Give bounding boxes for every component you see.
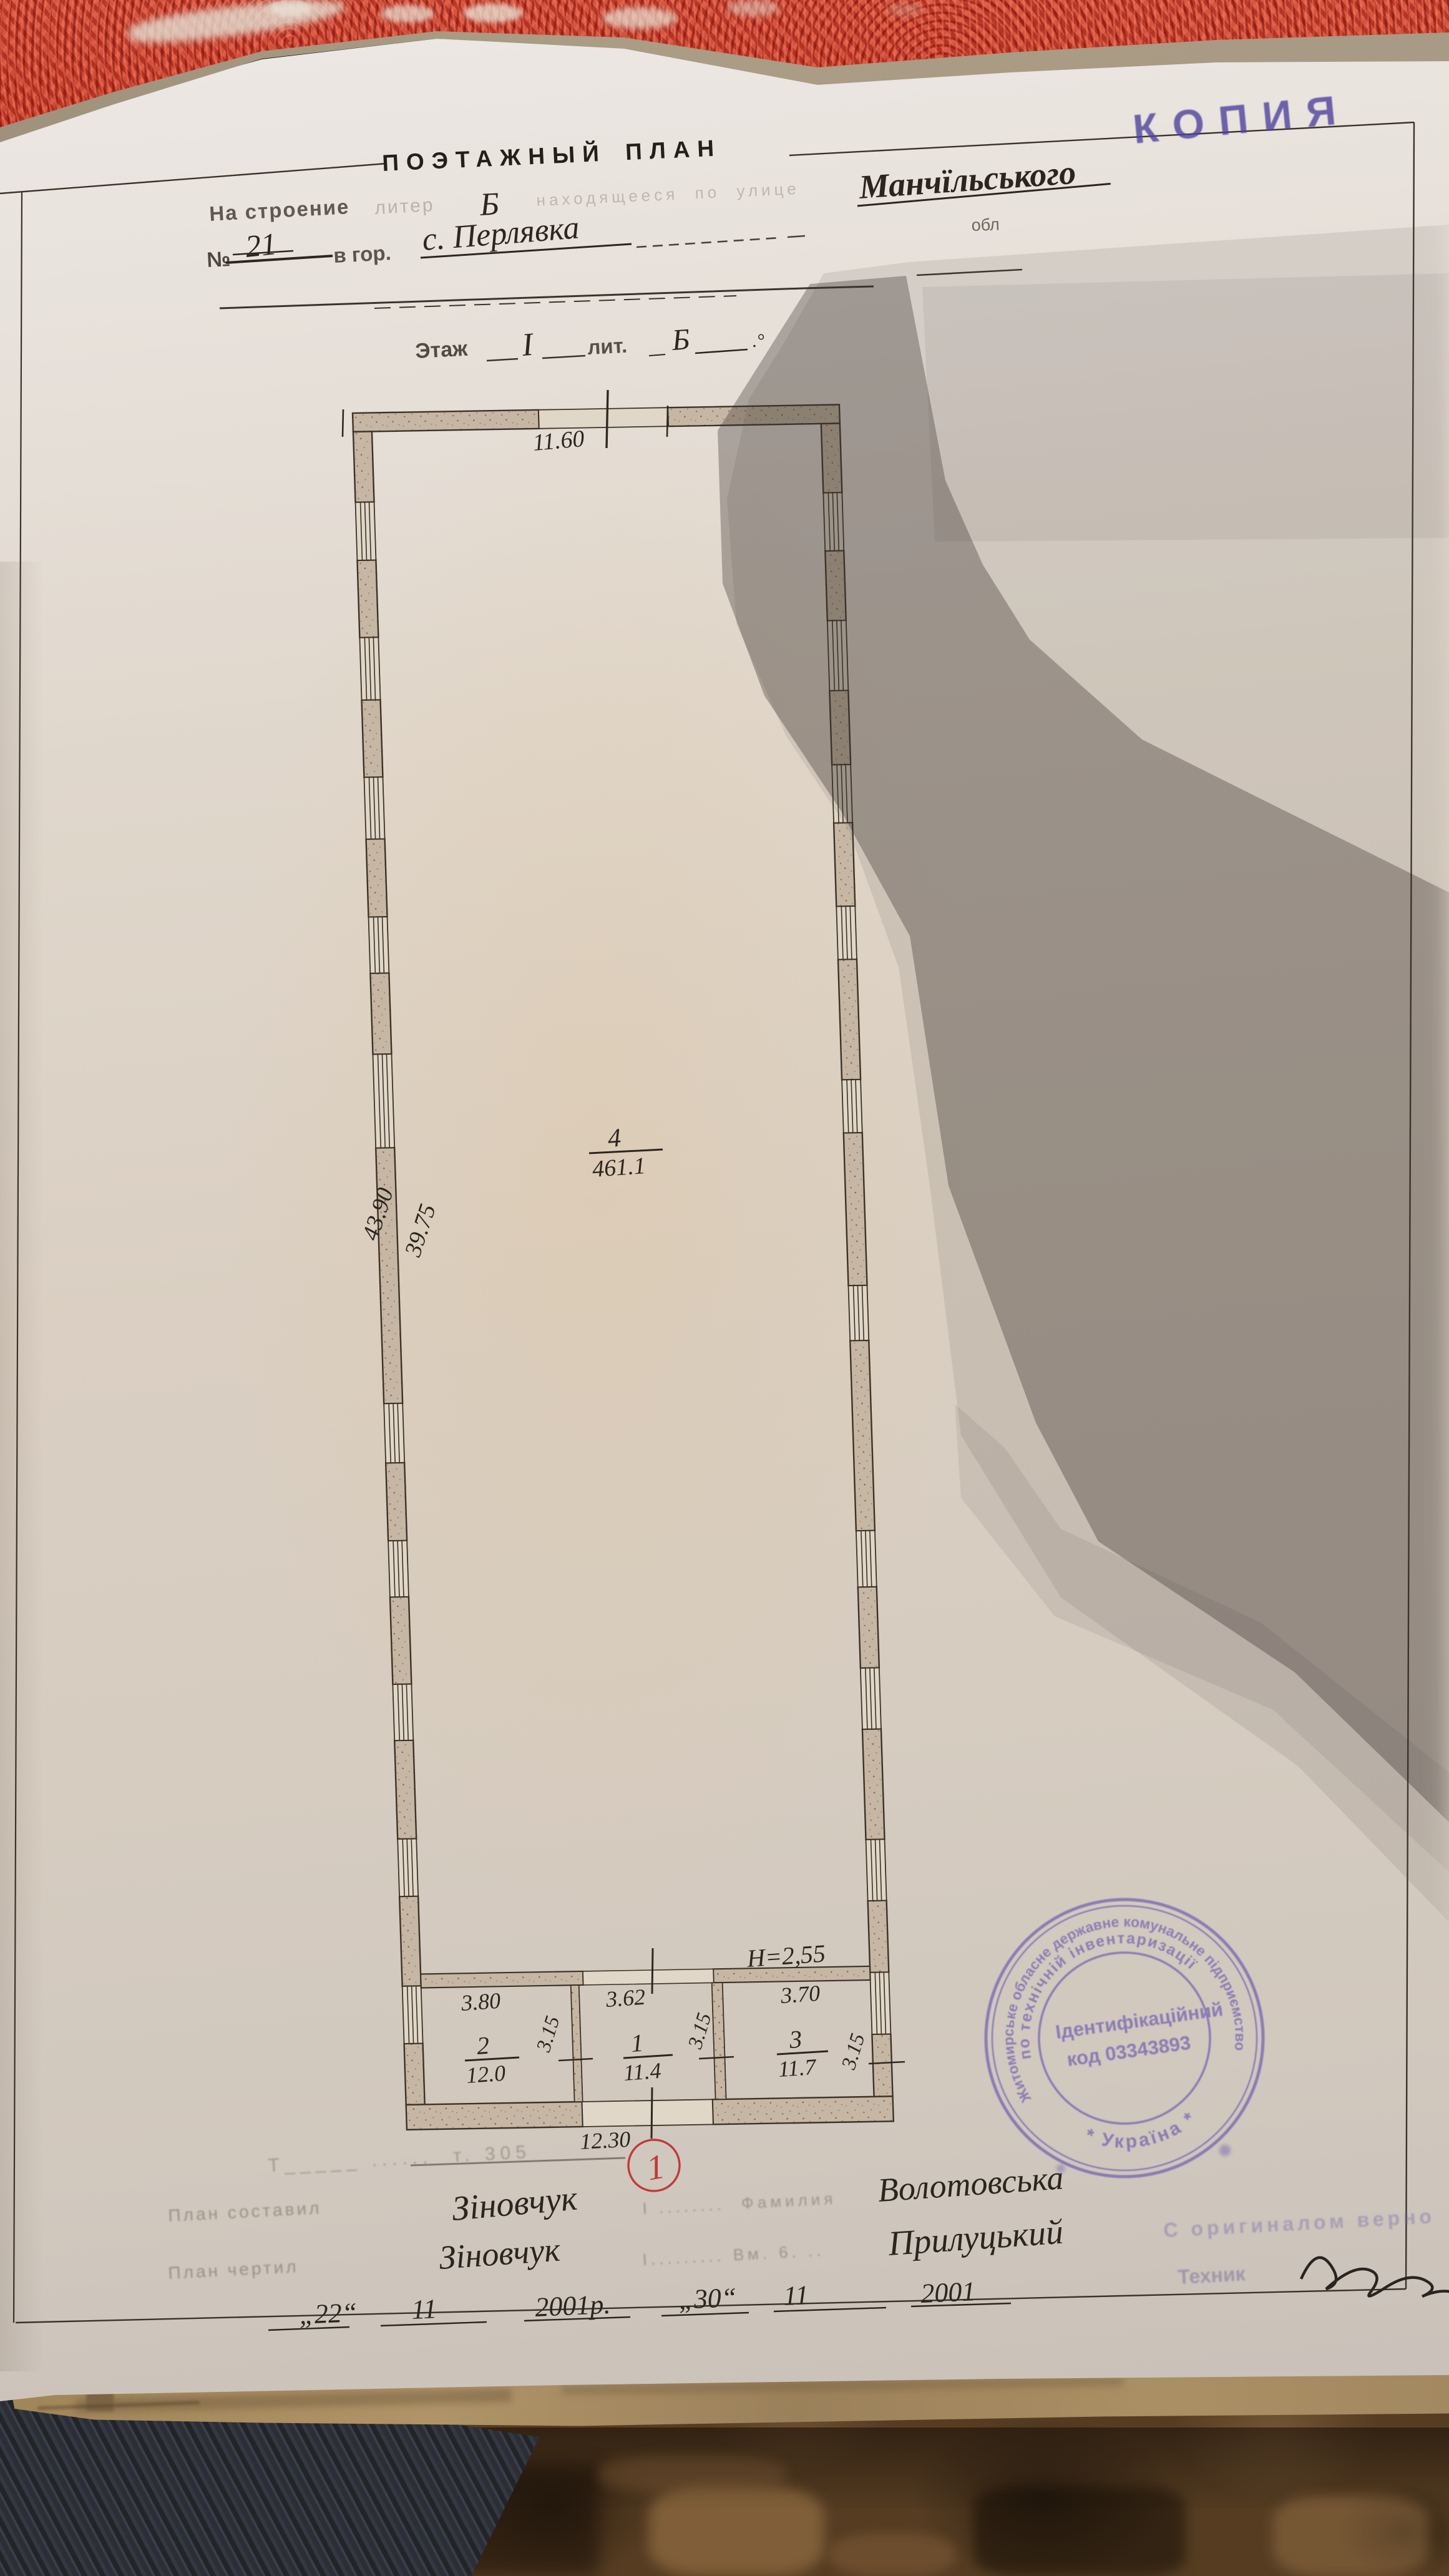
svg-text:ПОЭТАЖНЫЙ ПЛАН: ПОЭТАЖНЫЙ ПЛАН — [381, 134, 722, 176]
svg-text:1: 1 — [643, 2147, 667, 2188]
svg-text:С оригиналом верно: С оригиналом верно — [1163, 2205, 1435, 2242]
svg-text:12.30: 12.30 — [579, 2127, 631, 2154]
svg-text:12.0: 12.0 — [466, 2061, 507, 2088]
svg-text:.°: .° — [752, 330, 765, 351]
svg-text:Прилуцький: Прилуцький — [887, 2213, 1065, 2263]
svg-text:в гор.: в гор. — [333, 241, 391, 267]
svg-text:№: № — [206, 247, 231, 272]
svg-text:39.75: 39.75 — [399, 1201, 441, 1260]
svg-text:2: 2 — [476, 2031, 490, 2060]
svg-text:1: 1 — [630, 2029, 644, 2057]
svg-text:3: 3 — [788, 2025, 803, 2054]
svg-text:11: 11 — [411, 2293, 437, 2325]
svg-text:„30“: „30“ — [678, 2282, 737, 2315]
svg-text:лит.: лит. — [587, 334, 628, 359]
svg-text:Т_____ ...... т. 305: Т_____ ...... т. 305 — [268, 2142, 532, 2176]
svg-text:с. Перлявка: с. Перлявка — [421, 210, 580, 258]
svg-text:3.15: 3.15 — [837, 2031, 870, 2073]
svg-text:11.4: 11.4 — [623, 2058, 662, 2086]
svg-text:Техник: Техник — [1177, 2262, 1246, 2288]
svg-text:Б: Б — [670, 323, 691, 357]
svg-text:обл: обл — [971, 215, 1000, 235]
svg-text:11.7: 11.7 — [778, 2054, 818, 2082]
svg-text:Манчїльського: Манчїльського — [857, 154, 1077, 206]
svg-text:3.15: 3.15 — [532, 2014, 565, 2056]
svg-text:Зіновчук: Зіновчук — [438, 2231, 562, 2276]
svg-text:3.15: 3.15 — [684, 2011, 716, 2052]
svg-text:3.62: 3.62 — [605, 1984, 646, 2012]
svg-text:литер: литер — [374, 195, 436, 218]
svg-text:461.1: 461.1 — [592, 1153, 646, 1183]
svg-text:21: 21 — [243, 226, 278, 264]
svg-text:3.70: 3.70 — [779, 1981, 821, 2008]
svg-text:І ........ Фамилия: І ........ Фамилия — [642, 2189, 837, 2218]
svg-text:КОПИЯ: КОПИЯ — [1131, 85, 1352, 152]
svg-text:I: I — [520, 326, 536, 363]
svg-text:Волотовська: Волотовська — [877, 2159, 1065, 2209]
svg-text:3.80: 3.80 — [460, 1988, 502, 2016]
svg-text:„22“: „22“ — [298, 2297, 358, 2330]
svg-text:Зіновчук: Зіновчук — [451, 2179, 580, 2228]
svg-text:План чертил: План чертил — [168, 2256, 300, 2283]
svg-text:Ідентифікаційний: Ідентифікаційний — [1054, 1998, 1224, 2043]
svg-text:План составил: План составил — [168, 2198, 322, 2225]
svg-text:находящееся по улице: находящееся по улице — [536, 179, 800, 210]
svg-text:11.60: 11.60 — [532, 426, 585, 456]
svg-text:Н=2,55: Н=2,55 — [745, 1939, 826, 1973]
svg-text:На строение: На строение — [208, 195, 350, 225]
svg-text:Житомирське обласне державне к: Житомирське обласне державне комунальне … — [973, 1887, 1255, 2110]
svg-text:Этаж: Этаж — [414, 337, 469, 363]
svg-text:4: 4 — [607, 1124, 622, 1153]
svg-text:І......... Вм. 6. ..: І......... Вм. 6. .. — [642, 2241, 825, 2269]
svg-text:11: 11 — [783, 2280, 809, 2311]
